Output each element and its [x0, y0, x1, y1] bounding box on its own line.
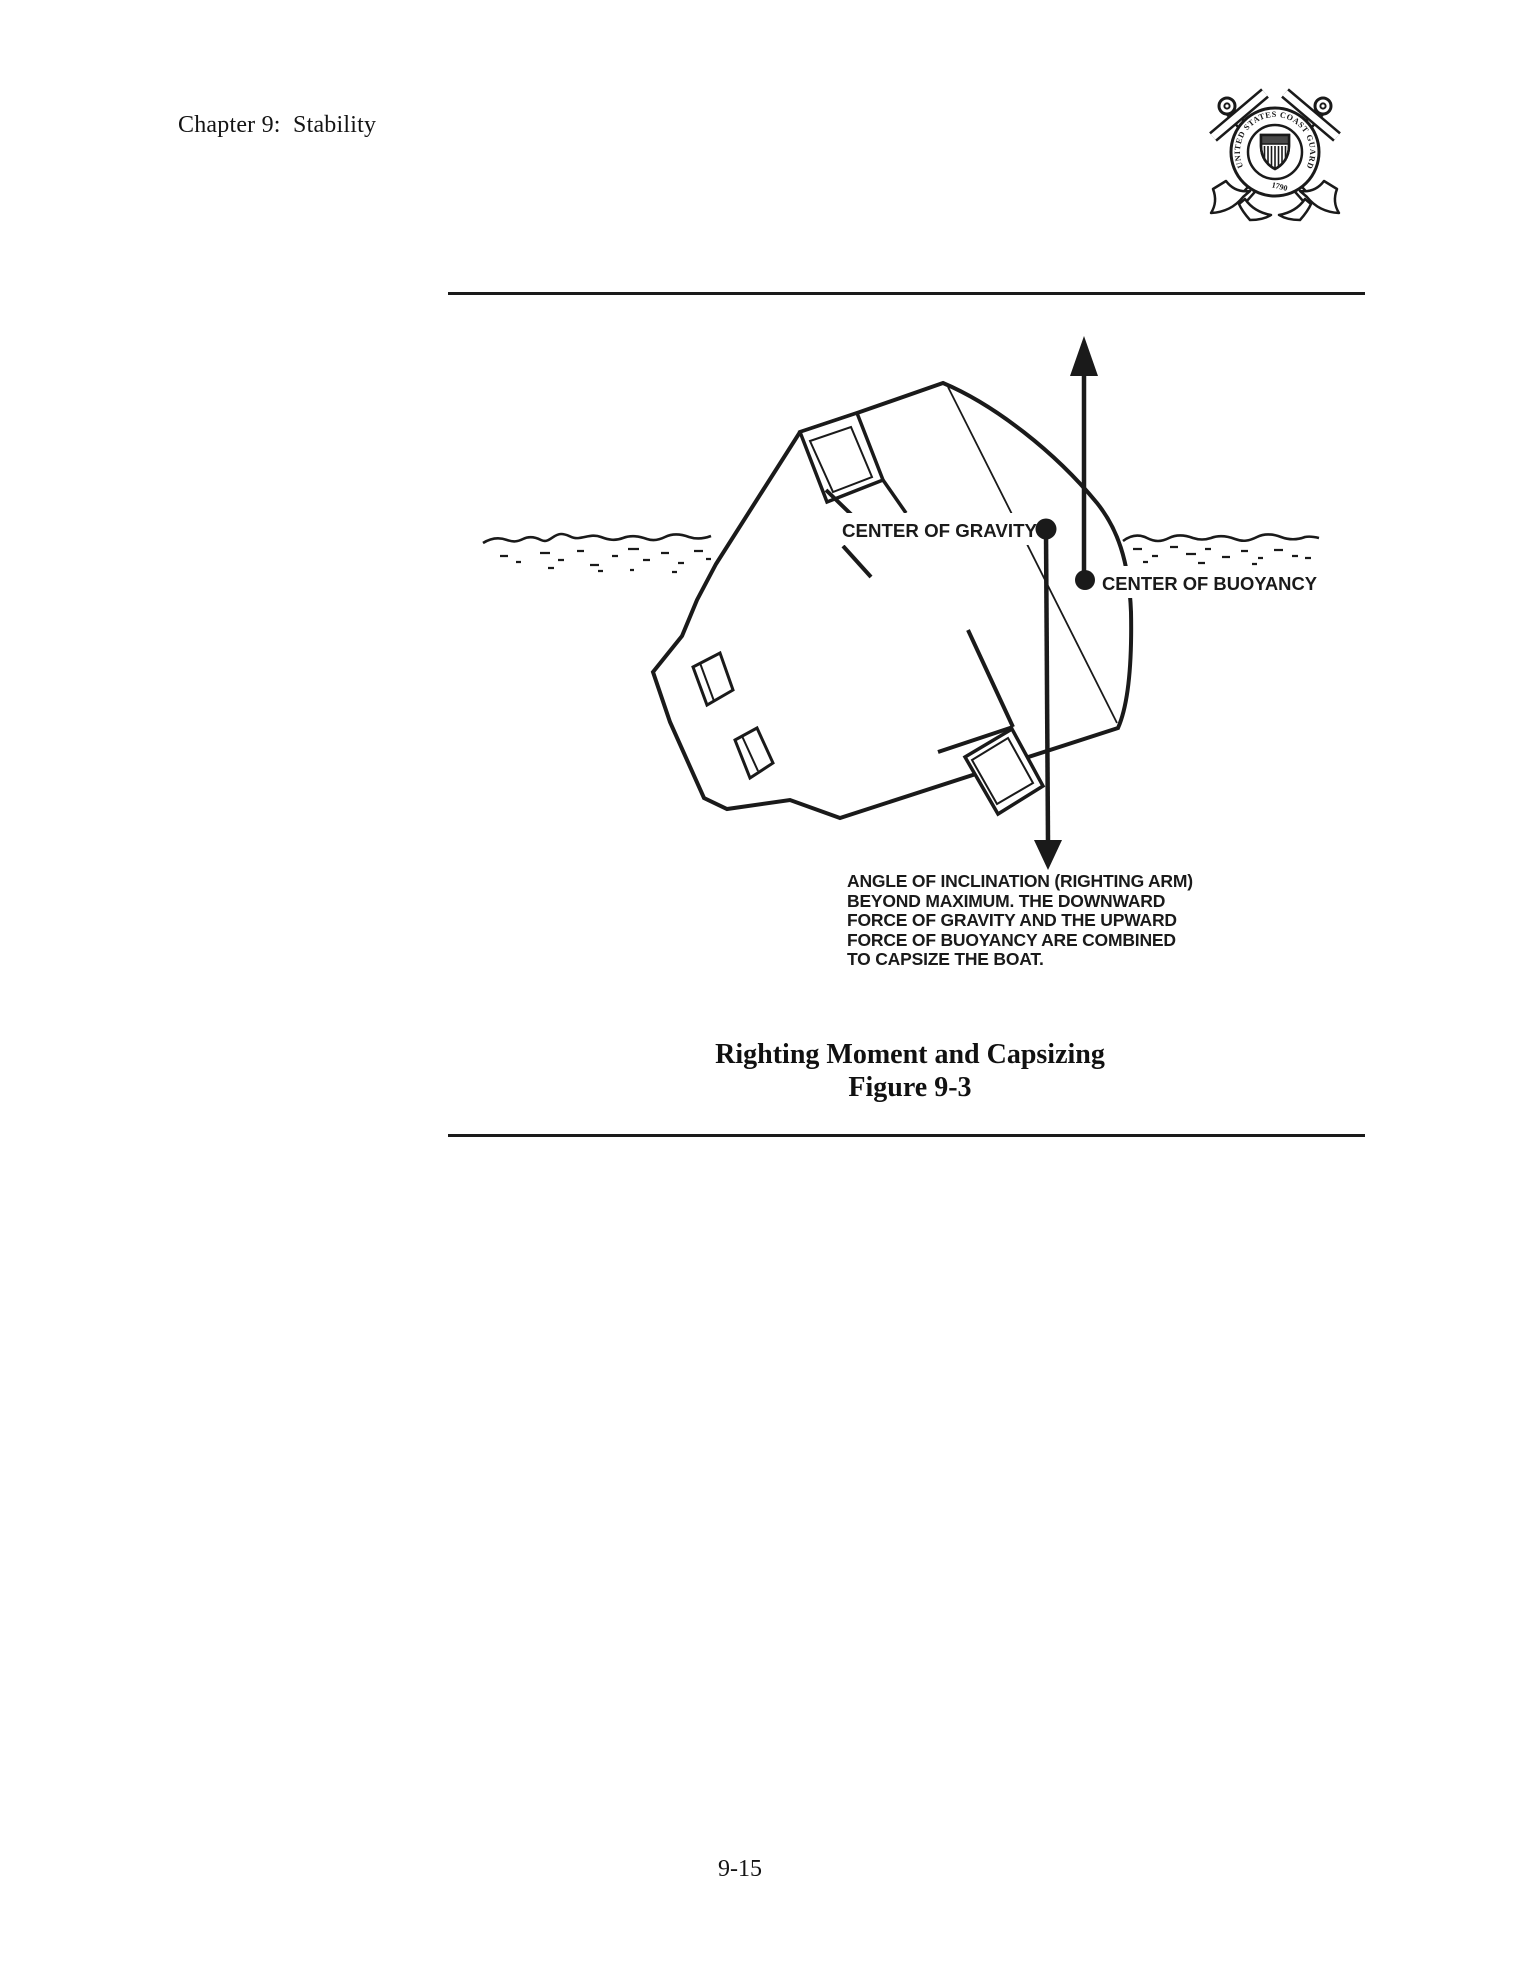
arrow-down-head-icon — [1034, 840, 1062, 870]
annotation-line: FORCE OF GRAVITY AND THE UPWARD — [847, 911, 1267, 931]
annotation-line: FORCE OF BUOYANCY ARE COMBINED — [847, 931, 1267, 951]
svg-text:CENTER OF GRAVITY: CENTER OF GRAVITY — [842, 521, 1037, 541]
figure-caption-number: Figure 9-3 — [410, 1071, 1410, 1104]
uscg-emblem-logo: UNITED STATES COAST GUARD 1790 — [1203, 85, 1353, 225]
page-number: 9-15 — [690, 1856, 790, 1883]
svg-text:CENTER OF BUOYANCY: CENTER OF BUOYANCY — [1102, 574, 1317, 594]
annotation-line: ANGLE OF INCLINATION (RIGHTING ARM) — [847, 872, 1267, 892]
figure-annotation-text: ANGLE OF INCLINATION (RIGHTING ARM) BEYO… — [847, 872, 1267, 970]
center-of-gravity-label: CENTER OF GRAVITY — [833, 513, 1041, 545]
figure-bottom-rule — [448, 1134, 1365, 1137]
document-page: Chapter 9: Stability — [0, 0, 1530, 1980]
water-surface-left — [483, 534, 711, 572]
center-of-gravity-point — [1036, 519, 1057, 540]
annotation-line: TO CAPSIZE THE BOAT. — [847, 950, 1267, 970]
figure-caption-title: Righting Moment and Capsizing — [410, 1038, 1410, 1071]
figure-caption: Righting Moment and Capsizing Figure 9-3 — [410, 1038, 1410, 1104]
annotation-line: BEYOND MAXIMUM. THE DOWNWARD — [847, 892, 1267, 912]
center-of-buoyancy-label: CENTER OF BUOYANCY — [1097, 566, 1329, 598]
center-of-buoyancy-point — [1075, 570, 1095, 590]
water-surface-right — [1123, 534, 1319, 564]
boat-hull-outline — [653, 383, 1131, 818]
arrow-up-head-icon — [1070, 336, 1098, 376]
chapter-header: Chapter 9: Stability — [178, 112, 376, 139]
